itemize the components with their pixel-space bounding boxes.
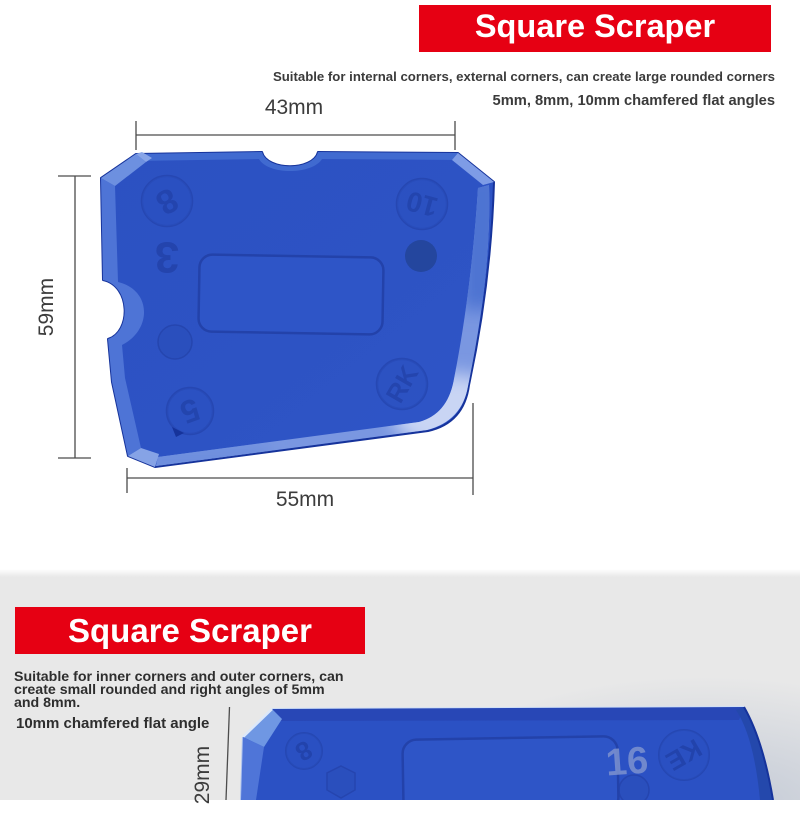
svg-text:3: 3	[155, 233, 179, 282]
